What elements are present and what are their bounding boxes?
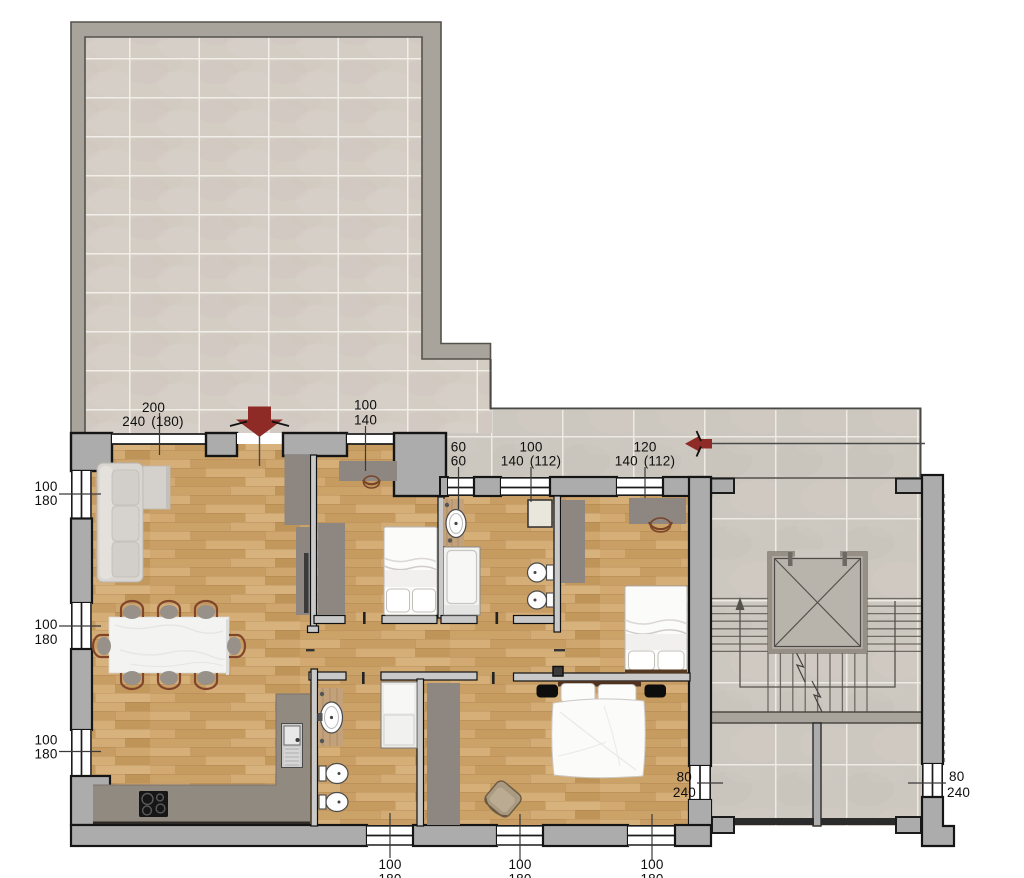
svg-text:140 (112): 140 (112) bbox=[501, 454, 561, 469]
svg-text:140 (112): 140 (112) bbox=[615, 454, 675, 469]
svg-text:180: 180 bbox=[34, 632, 57, 647]
svg-text:100: 100 bbox=[378, 857, 401, 872]
svg-text:80: 80 bbox=[949, 769, 964, 784]
svg-text:120: 120 bbox=[633, 440, 656, 455]
svg-text:180: 180 bbox=[378, 872, 401, 878]
svg-text:240 (180): 240 (180) bbox=[122, 414, 183, 429]
svg-text:140: 140 bbox=[354, 413, 377, 428]
svg-text:180: 180 bbox=[34, 747, 57, 762]
svg-text:240: 240 bbox=[947, 785, 970, 800]
svg-text:80: 80 bbox=[677, 770, 692, 785]
svg-text:180: 180 bbox=[34, 493, 57, 508]
svg-text:60: 60 bbox=[451, 454, 466, 469]
svg-text:180: 180 bbox=[508, 872, 531, 878]
svg-text:180: 180 bbox=[640, 872, 663, 878]
svg-text:60: 60 bbox=[451, 440, 466, 455]
svg-text:200: 200 bbox=[142, 400, 165, 415]
svg-text:100: 100 bbox=[508, 857, 531, 872]
svg-text:100: 100 bbox=[34, 479, 57, 494]
svg-text:100: 100 bbox=[354, 398, 377, 413]
svg-text:240: 240 bbox=[673, 785, 696, 800]
svg-text:100: 100 bbox=[34, 617, 57, 632]
svg-text:100: 100 bbox=[519, 440, 542, 455]
svg-text:100: 100 bbox=[34, 733, 57, 748]
svg-text:100: 100 bbox=[640, 857, 663, 872]
